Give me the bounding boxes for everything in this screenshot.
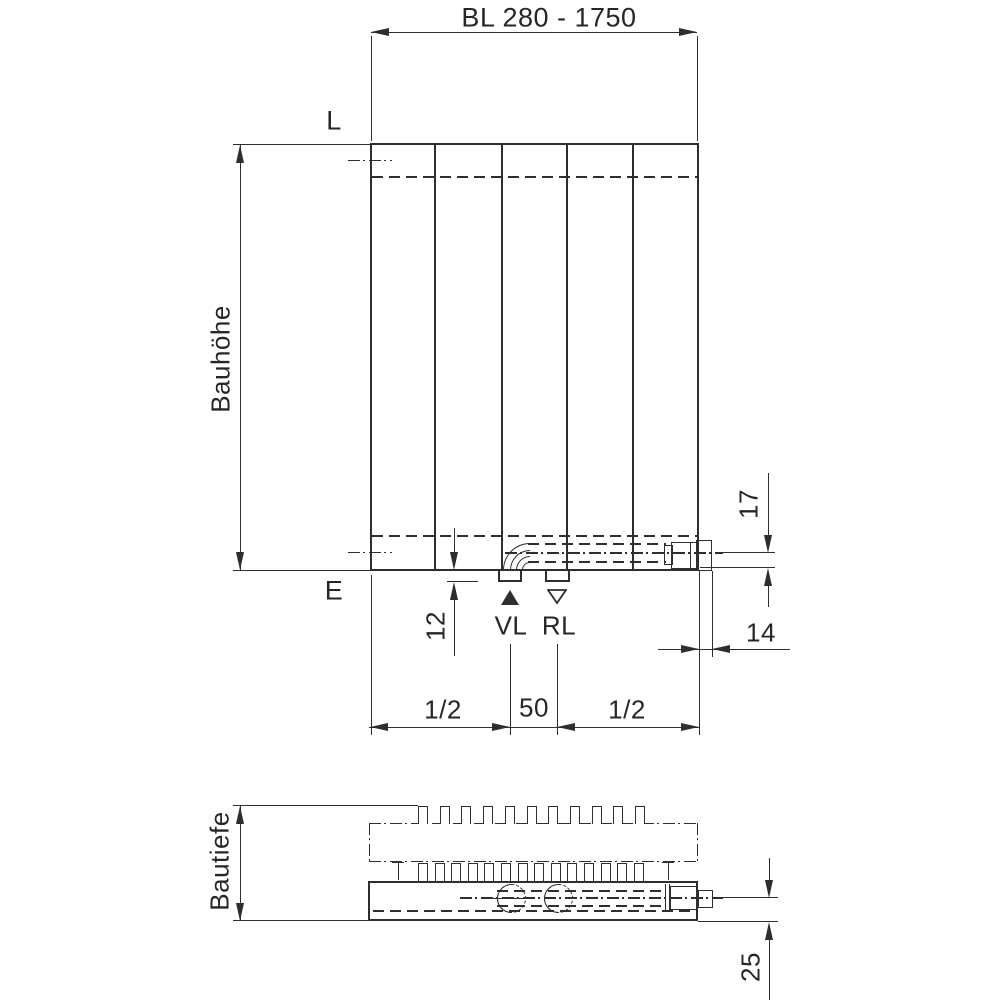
return-triangle-icon (547, 589, 567, 605)
height-dimension-label: Bauhöhe (206, 305, 237, 413)
pipe-depth-label: 25 (736, 952, 767, 982)
supply-label: VL (495, 611, 528, 642)
leader-line-vl (510, 644, 511, 735)
stub-depth-label: 12 (421, 611, 452, 641)
supply-triangle-icon (500, 590, 520, 606)
dimension-line (369, 727, 699, 728)
hanger-bracket (398, 862, 399, 880)
valve-body (671, 542, 697, 569)
pipe-hidden-line (528, 543, 666, 545)
leader-line-rl (557, 644, 558, 735)
center-spacing-label: 50 (519, 693, 549, 724)
extension-line (371, 575, 372, 735)
dimension-line (769, 858, 770, 880)
dimension-arrow (236, 806, 244, 824)
front-panel-outline (368, 881, 698, 921)
extension-line (233, 805, 418, 806)
dimension-line (768, 473, 769, 535)
fin-tooth (435, 863, 445, 881)
dimension-arrow (492, 723, 510, 731)
fin-tooth (518, 863, 528, 881)
valve-stub (698, 890, 713, 908)
fin-tooth (451, 863, 461, 881)
fin-tooth (567, 863, 577, 881)
dimension-arrow (371, 28, 389, 36)
pipe-hidden-line (528, 561, 666, 563)
dimension-arrow (679, 28, 697, 36)
right-half-label: 1/2 (608, 695, 646, 726)
dimension-arrow (681, 645, 699, 653)
phantom-outline (697, 823, 698, 862)
return-label: RL (542, 611, 576, 642)
fin-tooth (468, 863, 478, 881)
fin-tooth (613, 806, 623, 824)
dimension-line (454, 528, 455, 552)
depth-dimension-label: Bautiefe (205, 811, 236, 910)
extension-line (233, 570, 370, 571)
radiator-technical-drawing: BL 280 - 1750 L E Bauhöhe (0, 0, 1000, 1000)
dimension-line (240, 145, 241, 570)
pipe-height-label: 17 (734, 489, 765, 519)
panel-separator (434, 145, 437, 569)
dimension-arrow (450, 552, 458, 570)
fin-tooth (501, 863, 511, 881)
fin-tooth (461, 806, 471, 824)
fin-tooth (584, 863, 594, 881)
left-half-label: 1/2 (424, 695, 462, 726)
extension-line (233, 144, 370, 145)
extension-line (233, 920, 368, 921)
centerline-mark-bottom (348, 552, 392, 553)
fin-tooth (601, 863, 611, 881)
panel-separator (566, 145, 569, 569)
dimension-arrow (450, 582, 458, 600)
extension-line (371, 36, 372, 141)
fin-tooth (592, 806, 602, 824)
centerline-mark-top (348, 160, 392, 161)
valve-flange (665, 884, 666, 912)
dimension-arrow (765, 880, 773, 898)
port-center-tick (489, 898, 525, 899)
panel-separator (501, 145, 504, 569)
bottom-edge-label: E (325, 576, 344, 607)
fin-tooth (551, 863, 561, 881)
fin-tooth (635, 806, 645, 824)
dimension-line (769, 940, 770, 1000)
valve-body-line (690, 543, 691, 568)
dimension-line (371, 32, 697, 33)
hidden-line-top (372, 176, 697, 178)
panel-separator (632, 145, 635, 569)
dimension-arrow (712, 645, 730, 653)
side-offset-label: 14 (746, 618, 776, 649)
top-edge-label: L (326, 106, 342, 137)
dimension-arrow (236, 552, 244, 570)
fin-tooth (570, 806, 580, 824)
fin-tooth (418, 863, 428, 881)
vl-connection-stub (498, 570, 522, 582)
fin-tooth (484, 863, 494, 881)
panel-hidden-line (373, 910, 693, 912)
fin-tooth (527, 806, 537, 824)
dimension-arrow (765, 922, 773, 940)
dimension-arrow (764, 568, 772, 586)
extension-line (697, 36, 698, 141)
fin-tooth (617, 863, 627, 881)
fin-tooth (483, 806, 493, 824)
extension-line (712, 571, 713, 657)
fin-tooth (418, 806, 428, 824)
dimension-arrow (236, 145, 244, 163)
dimension-arrow (764, 535, 772, 553)
dimension-arrow (557, 723, 575, 731)
fin-tooth (534, 863, 544, 881)
fin-tooth (548, 806, 558, 824)
hanger-bracket (668, 862, 669, 880)
phantom-outline (369, 823, 370, 862)
fin-tooth (634, 863, 644, 881)
dimension-line (768, 586, 769, 607)
bl-dimension-label: BL 280 - 1750 (461, 3, 636, 34)
dimension-arrow (370, 723, 388, 731)
dimension-arrow (681, 723, 699, 731)
radiator-body-outline (370, 143, 699, 571)
dimension-line (454, 600, 455, 656)
fin-tooth (440, 806, 450, 824)
dimension-arrow (236, 903, 244, 921)
rl-connection-stub (545, 570, 570, 582)
hidden-line-bottom (372, 535, 697, 537)
valve-body (670, 886, 698, 910)
fin-tooth (505, 806, 515, 824)
